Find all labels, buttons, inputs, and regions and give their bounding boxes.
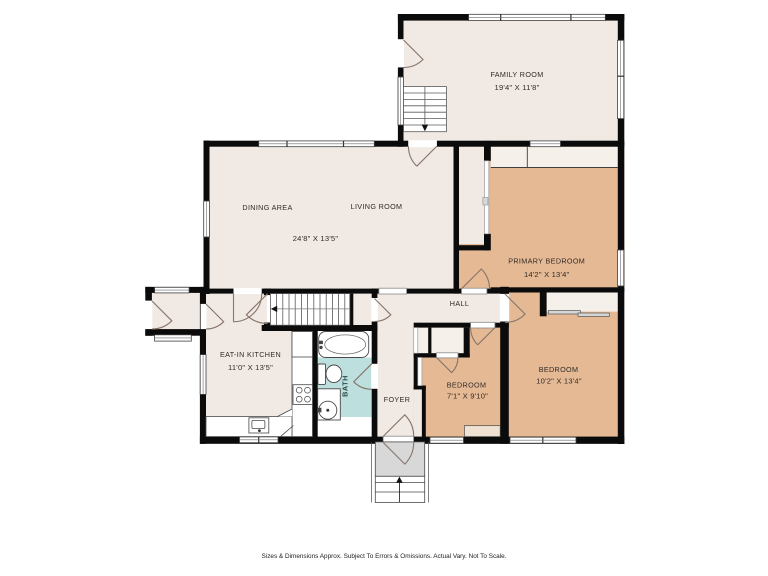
svg-text:FOYER: FOYER	[384, 395, 411, 404]
svg-text:HALL: HALL	[450, 299, 469, 308]
svg-text:BEDROOM: BEDROOM	[447, 381, 487, 390]
svg-text:11'0" X 13'5": 11'0" X 13'5"	[228, 363, 273, 372]
svg-text:19'4" X 11'8": 19'4" X 11'8"	[495, 83, 540, 92]
svg-text:10'2" X 13'4": 10'2" X 13'4"	[536, 377, 582, 386]
svg-text:7'1" X 9'10": 7'1" X 9'10"	[447, 391, 488, 400]
svg-text:BEDROOM: BEDROOM	[539, 365, 579, 374]
svg-text:Sizes & Dimensions Approx. Sub: Sizes & Dimensions Approx. Subject To Er…	[262, 553, 507, 560]
svg-text:DINING AREA: DINING AREA	[242, 203, 292, 212]
svg-text:EAT-IN KITCHEN: EAT-IN KITCHEN	[220, 350, 281, 359]
svg-text:FAMILY ROOM: FAMILY ROOM	[490, 70, 543, 79]
svg-text:LIVING ROOM: LIVING ROOM	[351, 202, 403, 211]
svg-text:BATH: BATH	[341, 375, 350, 397]
svg-text:14'2" X 13'4": 14'2" X 13'4"	[524, 270, 570, 279]
svg-text:PRIMARY BEDROOM: PRIMARY BEDROOM	[508, 256, 585, 265]
svg-text:24'8" X 13'5": 24'8" X 13'5"	[293, 234, 339, 243]
